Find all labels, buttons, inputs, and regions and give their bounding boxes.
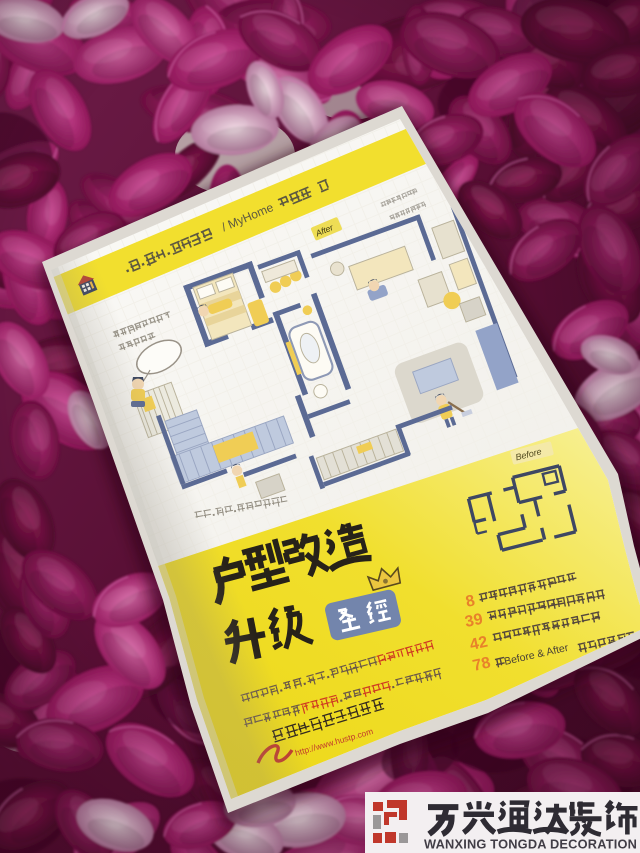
svg-text:WANXING TONGDA DECORATION: WANXING TONGDA DECORATION <box>424 837 637 852</box>
